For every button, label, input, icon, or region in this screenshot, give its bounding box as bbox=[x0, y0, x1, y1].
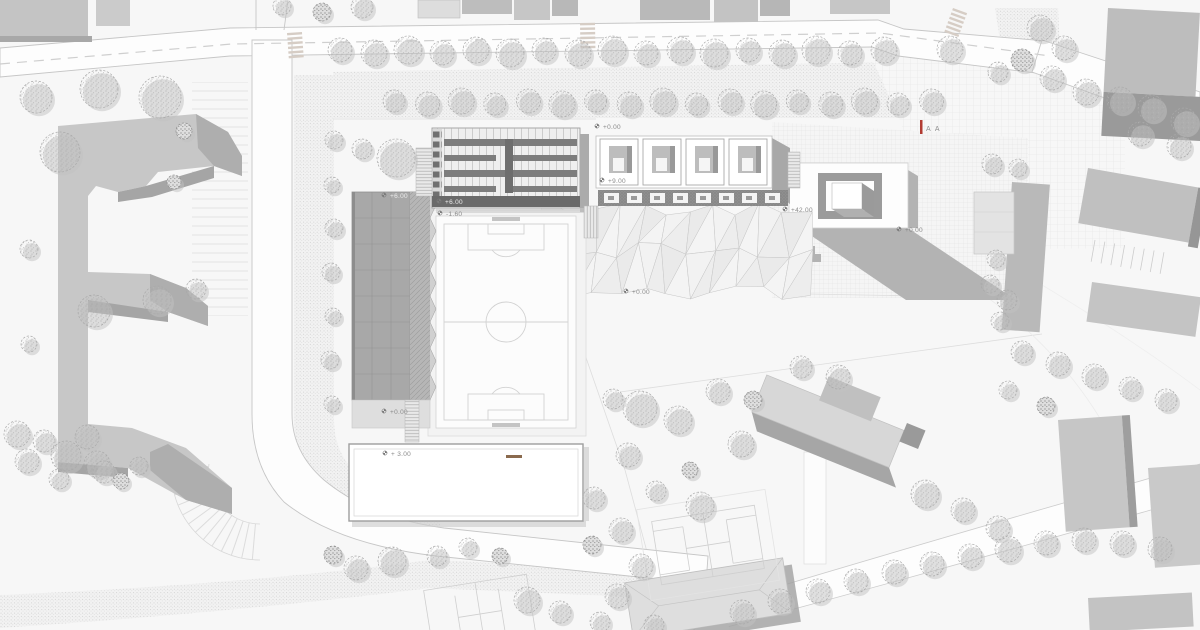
tree bbox=[113, 473, 132, 492]
swimming-pool bbox=[349, 444, 589, 527]
level-label-park: +0.00 bbox=[623, 288, 650, 296]
stairs bbox=[416, 148, 432, 196]
crosswalk bbox=[944, 8, 967, 37]
parking-tick bbox=[252, 524, 255, 560]
parking-tick bbox=[196, 507, 222, 532]
level-label-plaza-top: +0.00 bbox=[594, 123, 621, 131]
site-plan-svg: +0.00 +9.00 +6.00 +6.00 -1.60 +42.00 +0.… bbox=[0, 0, 1200, 630]
tree bbox=[1155, 389, 1180, 414]
level-text: +0.00 bbox=[632, 289, 650, 296]
tree bbox=[682, 462, 701, 481]
soccer-field bbox=[428, 210, 586, 436]
level-text: + 3.00 bbox=[391, 451, 411, 458]
level-text: +0.00 bbox=[390, 409, 408, 416]
tree bbox=[1119, 377, 1144, 402]
level-text: +6.00 bbox=[390, 193, 408, 200]
tree bbox=[616, 443, 643, 470]
tree bbox=[20, 240, 41, 261]
level-text: -1.60 bbox=[446, 211, 462, 218]
level-text: +42.00 bbox=[791, 207, 813, 214]
tree bbox=[999, 381, 1020, 402]
pavilion-row bbox=[596, 136, 800, 206]
tree bbox=[706, 379, 733, 406]
tree bbox=[911, 480, 942, 511]
sports-complex bbox=[349, 128, 813, 527]
tree bbox=[590, 612, 613, 630]
tree bbox=[80, 70, 121, 111]
tree bbox=[1046, 352, 1073, 379]
level-text: +6.00 bbox=[445, 199, 463, 206]
tree bbox=[1037, 397, 1058, 418]
tree bbox=[664, 406, 695, 437]
tree bbox=[728, 431, 757, 460]
section-label: A A bbox=[926, 126, 941, 133]
tree bbox=[20, 81, 55, 116]
tree bbox=[1072, 528, 1099, 555]
parking-tick bbox=[203, 512, 226, 540]
tree bbox=[1011, 341, 1036, 366]
parking-tick bbox=[212, 516, 232, 546]
tree bbox=[139, 76, 184, 121]
park-path bbox=[804, 452, 826, 564]
site-plan-canvas: +0.00 +9.00 +6.00 +6.00 -1.60 +42.00 +0.… bbox=[0, 0, 1200, 630]
goal-south bbox=[492, 423, 520, 427]
level-marker-icon bbox=[594, 123, 599, 128]
tree bbox=[21, 336, 40, 355]
tree bbox=[377, 139, 418, 180]
stairs bbox=[584, 206, 598, 238]
tree bbox=[549, 601, 574, 626]
tree bbox=[686, 492, 717, 523]
tree bbox=[273, 0, 294, 18]
section-cut-icon bbox=[920, 120, 923, 134]
tree bbox=[951, 498, 978, 525]
tree bbox=[351, 0, 376, 21]
tree bbox=[1110, 531, 1137, 558]
tree bbox=[352, 139, 375, 162]
tree bbox=[609, 518, 636, 545]
tree bbox=[623, 391, 660, 428]
level-text: +9.00 bbox=[608, 178, 626, 185]
arcade-strip bbox=[598, 190, 788, 206]
tree bbox=[790, 356, 815, 381]
grandstand bbox=[352, 192, 436, 442]
tree bbox=[4, 421, 33, 450]
level-text: +0.00 bbox=[603, 124, 621, 131]
tree bbox=[313, 3, 334, 24]
tree bbox=[646, 481, 669, 504]
tree bbox=[324, 546, 345, 567]
stairs bbox=[405, 400, 419, 442]
parking-tick bbox=[242, 523, 249, 558]
tree bbox=[15, 449, 42, 476]
level-text: +0.00 bbox=[905, 227, 923, 234]
diving-board bbox=[506, 455, 522, 458]
goal-north bbox=[492, 217, 520, 221]
tree bbox=[1082, 364, 1109, 391]
tree bbox=[603, 389, 626, 412]
